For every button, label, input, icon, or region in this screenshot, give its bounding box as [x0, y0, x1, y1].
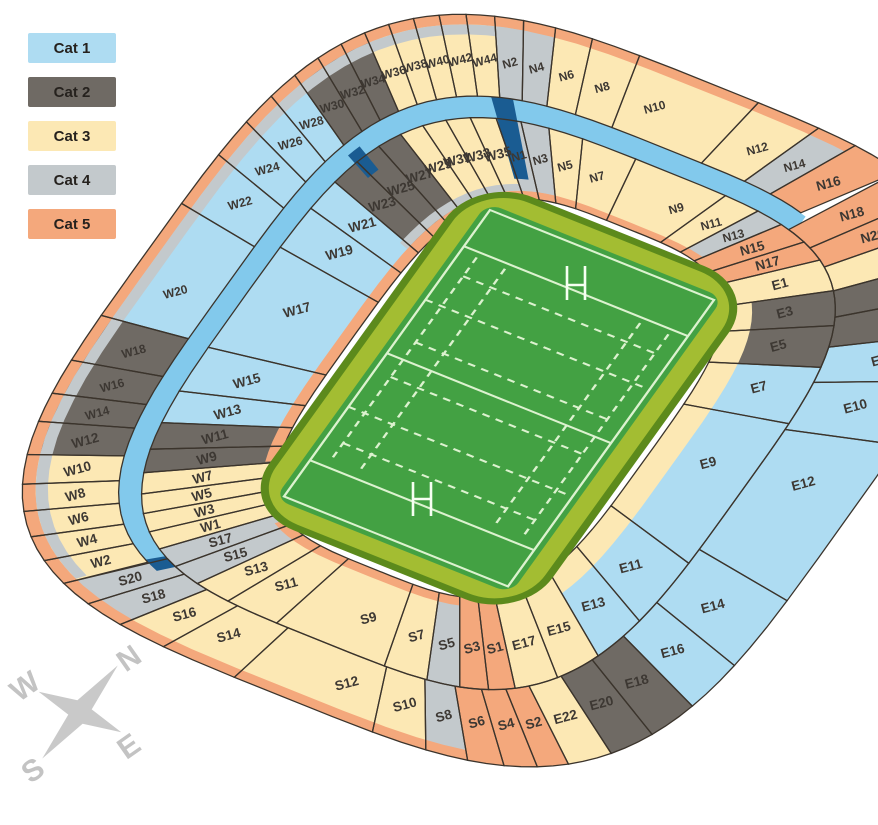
compass-star-icon [39, 665, 122, 758]
legend-label-cat3: Cat 3 [54, 128, 91, 145]
legend-item-cat5: Cat 5 [28, 209, 116, 239]
legend-item-cat1: Cat 1 [28, 33, 116, 63]
legend-label-cat1: Cat 1 [54, 40, 91, 57]
legend-item-cat3: Cat 3 [28, 121, 116, 151]
legend: Cat 1 Cat 2 Cat 3 Cat 4 Cat 5 [28, 33, 116, 239]
stadium-map-svg: W1W3W5W7W9W11W13W15W17W19W21W23W25W27W29… [0, 0, 878, 825]
legend-label-cat4: Cat 4 [54, 172, 91, 189]
compass-rose: N W E S [4, 639, 147, 790]
legend-item-cat2: Cat 2 [28, 77, 116, 107]
legend-label-cat2: Cat 2 [54, 84, 91, 101]
compass-s-label: S [15, 752, 50, 791]
compass-e-label: E [111, 728, 146, 767]
legend-label-cat5: Cat 5 [54, 216, 91, 233]
compass-n-label: N [111, 639, 148, 678]
legend-item-cat4: Cat 4 [28, 165, 116, 195]
stadium-seating-map-page: W1W3W5W7W9W11W13W15W17W19W21W23W25W27W29… [0, 0, 878, 825]
compass-w-label: W [4, 665, 47, 709]
